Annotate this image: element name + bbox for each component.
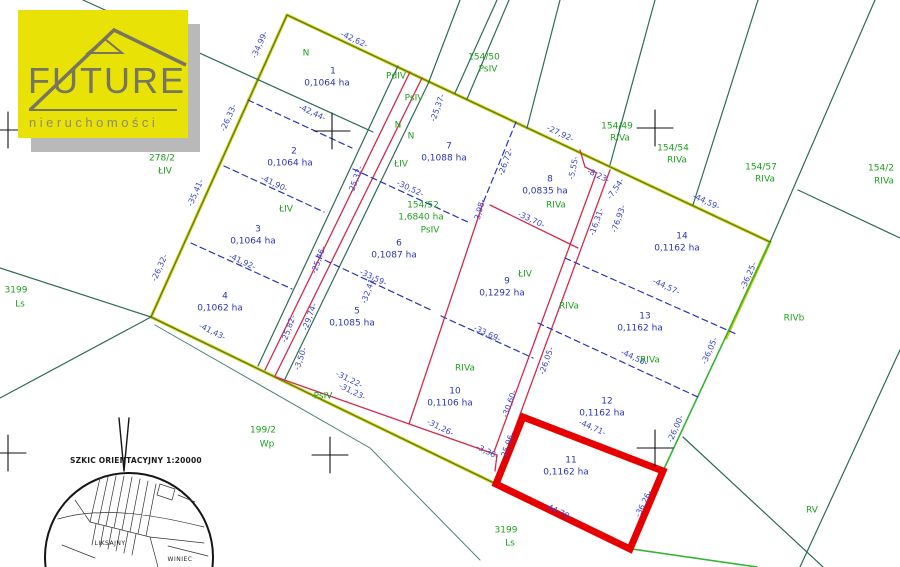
soil-label: 1,6840 ha [398,214,444,223]
parcel-label: 0,1085 ha [329,320,375,329]
soil-label: RIVa [755,176,775,185]
soil-label: RIVa [455,365,475,374]
logo-divider [29,109,177,111]
soil-label: 154/2 [868,165,894,174]
cadastral-sketch-page: -42,62--27,92--44,59--34,99--26,33--35,4… [0,0,900,567]
parcel-label: 13 [639,313,650,322]
soil-label: RIVa [874,178,894,187]
soil-label: Ls [505,540,515,549]
soil-label: N [303,50,310,59]
soil-label: ŁIV [394,161,408,170]
soil-label: PsIV [405,95,424,104]
soil-label: RIVa [610,135,630,144]
soil-label: RIVa [640,357,660,366]
parcel-label: 0,1106 ha [427,400,473,409]
highlighted-parcel-outline [496,417,663,549]
parcel-label: 0,1062 ha [197,305,243,314]
parcel-label: 14 [676,233,687,242]
soil-label: Wp [260,441,275,450]
brand-logo: FUTURE nieruchomości [18,10,188,138]
parcel-label: 0,1087 ha [371,252,417,261]
parcel-label: 6 [396,240,402,249]
parcel-label: 2 [291,148,297,157]
inset-minimap [58,476,208,567]
parcel-label: 0,1064 ha [267,160,313,169]
soil-label: 3199 [495,527,518,536]
soil-label: RIVa [546,202,566,211]
soil-label: RIVa [667,157,687,166]
parcel-label: 12 [601,398,612,407]
soil-label: ŁIV [518,271,532,280]
soil-label: 154/52 [407,202,439,211]
soil-label: RV [806,507,818,516]
parcel-label: 0,1162 ha [617,325,663,334]
parcel-label: 0,1162 ha [543,469,589,478]
parcel-label: 1 [330,68,336,77]
brand-name: FUTURE [28,60,186,102]
soil-label: 154/54 [657,145,689,154]
soil-label: RIVa [559,303,579,312]
parcel-label: 10 [449,388,460,397]
soil-label: 278/2 [149,155,175,164]
parcel-label: 8 [547,176,553,185]
parcel-label: 9 [504,278,510,287]
parcel-label: 0,1162 ha [579,410,625,419]
soil-label: 154/57 [745,164,777,173]
soil-label: PsIV [479,66,498,75]
soil-label: PdIV [386,73,406,82]
soil-label: Ls [15,301,25,310]
soil-label: ŁIV [158,168,172,177]
soil-label: 3199 [5,287,28,296]
soil-label: PsIV [421,227,440,236]
parcel-label: 11 [565,457,576,466]
parcel-label: 5 [354,308,360,317]
parcel-label: 0,1064 ha [304,80,350,89]
soil-label: 154/49 [601,123,633,132]
inset-place-label: LIKSAJNY [95,541,126,547]
soil-label: 154/50 [468,54,500,63]
soil-label: N [408,133,415,142]
inset-title: SZKIC ORIENTACYJNY 1:20000 [70,456,202,465]
parcel-label: 3 [255,226,261,235]
parcel-label: 0,1064 ha [230,238,276,247]
parcel-label: 0,1088 ha [421,155,467,164]
parcel-label: 7 [446,143,452,152]
soil-label: PsIV [314,393,333,402]
soil-label: ŁIV [279,206,293,215]
soil-label: N [395,122,402,131]
inset-place-label: WINIEC [168,557,193,563]
parcel-label: 0,1162 ha [654,245,700,254]
parcel-label: 0,1292 ha [479,290,525,299]
soil-label: RIVb [784,315,805,324]
soil-label: 199/2 [250,427,276,436]
brand-subtitle: nieruchomości [29,115,158,130]
parcel-label: 0,0835 ha [522,188,568,197]
parcel-label: 4 [222,293,228,302]
